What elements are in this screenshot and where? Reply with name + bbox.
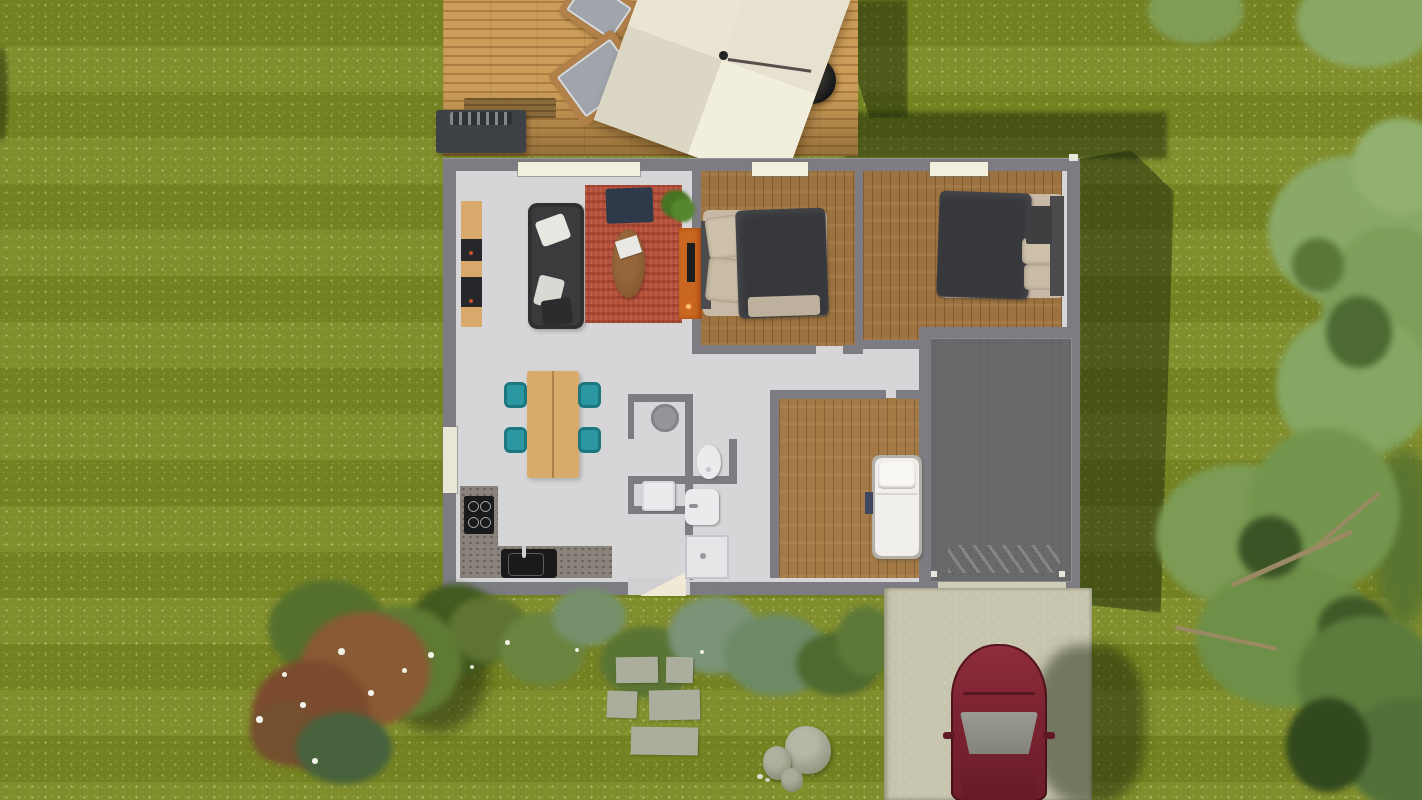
blanket-fold [876,493,918,495]
tree-shade-gap [1326,296,1392,368]
car [947,640,1051,800]
bush-foliage-teal [296,712,392,784]
duvet [936,190,1032,299]
stepping-stone [616,657,658,684]
sofa [528,203,584,329]
double-bed-1 [701,207,828,319]
basin-faucet [689,504,698,508]
wall-bedroom2-bottom [863,340,925,349]
dining-chair [504,427,527,453]
plant-foliage [671,198,695,222]
tree-shade-gap [1292,238,1344,292]
stepping-stone [666,657,693,683]
flower [282,672,287,677]
wall-bath-top [628,394,693,402]
wall-bath-stub1 [628,394,634,439]
flower [312,758,318,764]
washing-machine [651,404,679,432]
pebble [757,774,763,779]
tv-sideboard [679,228,702,319]
wall-bedroom1-bedroom2 [855,171,863,351]
wall-kidsroom-top [770,390,886,399]
window-kitchen-side [443,427,457,493]
house-shadow-top [845,112,1167,159]
lounge-chair [605,187,653,224]
tv-screen [687,243,695,282]
burner [480,501,491,512]
wall-bedroom1-door-stub [843,345,863,354]
burner [468,501,479,512]
burner [468,517,479,528]
bedside-chest [1026,206,1052,244]
car-hood-line [963,692,1035,695]
wall-kidsroom-top-stub [896,390,920,399]
wall-shelf [461,201,482,327]
rock [781,768,803,792]
car-mirror [943,732,955,739]
flower [256,716,263,723]
tree-foliage [1148,0,1244,44]
car-mirror [1043,732,1055,739]
garage-door-markings [948,545,1060,573]
flower [300,702,306,708]
candle-glow [685,303,692,310]
double-bed-2 [938,192,1064,300]
burner [480,517,491,528]
pebble [765,778,770,782]
car-roof [962,754,1036,800]
shower [685,535,729,579]
flower [505,640,510,645]
bed-throw [748,295,821,318]
stepping-stone [607,690,638,718]
flower [428,652,434,658]
flower [368,690,374,696]
dining-table [527,371,579,478]
garage-corner-mark [1059,571,1065,577]
tree-foliage [1296,0,1422,68]
flower [470,665,474,669]
tree-shade-gap [1286,698,1370,792]
stepping-stone [631,726,698,755]
window-living [518,162,640,176]
faucet [522,545,526,558]
toilet-flush [706,467,711,472]
car-windshield [960,712,1038,754]
houseplant [659,188,697,226]
coffee-table [612,229,645,298]
flower [575,648,579,652]
stepping-stone [649,690,701,721]
wall-garage-top [930,327,1072,338]
flower [402,668,407,673]
roof-vent [1069,154,1078,161]
window-bedroom1 [752,162,808,176]
dining-chair [578,427,601,453]
flower [338,648,345,655]
garage-corner-mark [931,571,937,577]
parasol-pole [719,51,728,60]
wall-wc-right [729,439,737,484]
tree-canopy-lower [1130,420,1422,800]
sofa-pillow [534,213,571,248]
headboard [1050,196,1064,296]
sofa-cushion [540,297,573,327]
nightstand [865,492,873,514]
shelf-accent [469,251,473,255]
window-bedroom2 [930,162,988,176]
kid-pillow [878,462,916,489]
car-shadow [1035,645,1145,800]
kitchen-sink [501,549,557,578]
outdoor-kitchen [436,110,526,153]
magazine [615,235,642,259]
single-bed [872,455,922,559]
dining-chair [578,382,601,408]
flowering-bush [240,570,460,800]
washbasin [685,489,719,525]
wall-kidsroom-left [770,390,779,578]
shelf-accent [469,299,473,303]
aerial-render [0,0,1422,800]
toilet [697,445,721,479]
shower-drain [700,553,706,559]
flower [700,650,704,654]
rock [785,726,831,774]
grill-grate [450,112,512,125]
cooktop [464,496,494,534]
laundry-appliance [642,481,675,511]
dining-chair [504,382,527,408]
sink-basin [508,553,544,576]
wall-bedroom1-bottom [692,345,816,354]
